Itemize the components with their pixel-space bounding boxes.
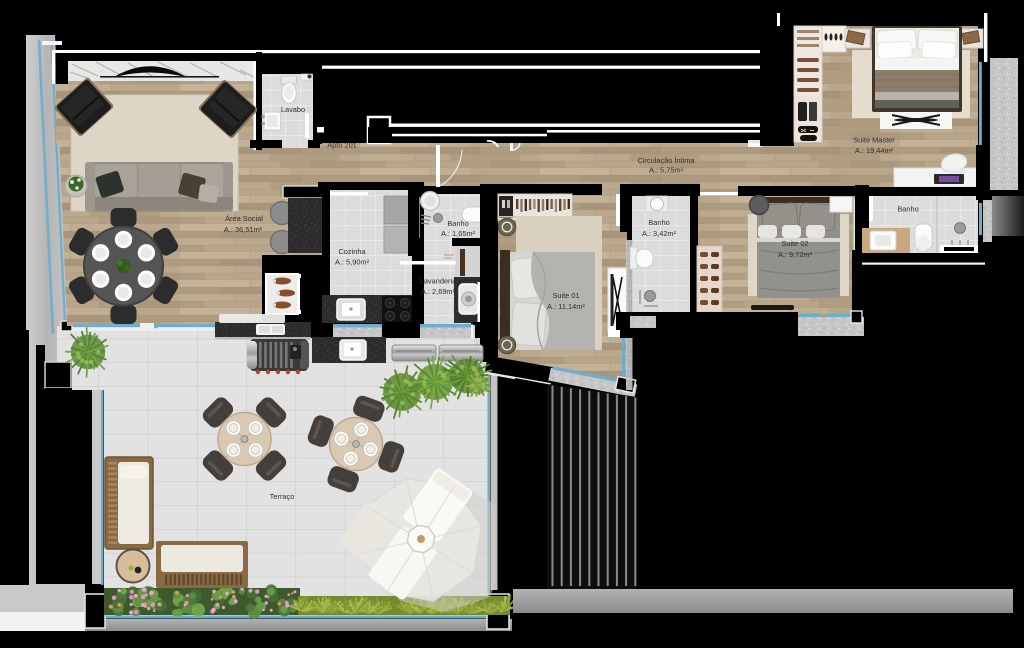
svg-text:Apto 201: Apto 201 xyxy=(327,141,357,150)
svg-text:Banho: Banho xyxy=(447,219,468,228)
svg-text:Suite Master: Suite Master xyxy=(853,136,895,145)
svg-text:A.: 3,42m²: A.: 3,42m² xyxy=(642,229,677,238)
svg-text:Banho: Banho xyxy=(648,218,669,227)
svg-text:A.: 5,90m²: A.: 5,90m² xyxy=(335,258,370,267)
svg-text:A.: 1,65m²: A.: 1,65m² xyxy=(441,229,476,238)
svg-text:A.: 5,75m²: A.: 5,75m² xyxy=(649,166,684,175)
svg-text:A.: 9,72m²: A.: 9,72m² xyxy=(778,250,813,259)
svg-text:Área Social: Área Social xyxy=(225,214,263,223)
svg-text:A.: 2,69m²: A.: 2,69m² xyxy=(421,287,456,296)
svg-text:A.: 36,51m²: A.: 36,51m² xyxy=(224,225,263,234)
svg-text:Circulação Íntima: Circulação Íntima xyxy=(637,156,695,165)
svg-text:A.: 11,14m²: A.: 11,14m² xyxy=(547,302,585,311)
svg-text:Lavanderia: Lavanderia xyxy=(420,277,457,286)
svg-text:Lavabo: Lavabo xyxy=(281,105,305,114)
svg-text:Banho: Banho xyxy=(897,205,918,214)
svg-text:Suite 02: Suite 02 xyxy=(781,239,808,248)
svg-text:A.: 19,44m²: A.: 19,44m² xyxy=(855,146,894,155)
svg-text:Terraço: Terraço xyxy=(270,492,295,501)
svg-text:Cozinha: Cozinha xyxy=(338,247,366,256)
svg-text:Suite 01: Suite 01 xyxy=(552,291,579,300)
